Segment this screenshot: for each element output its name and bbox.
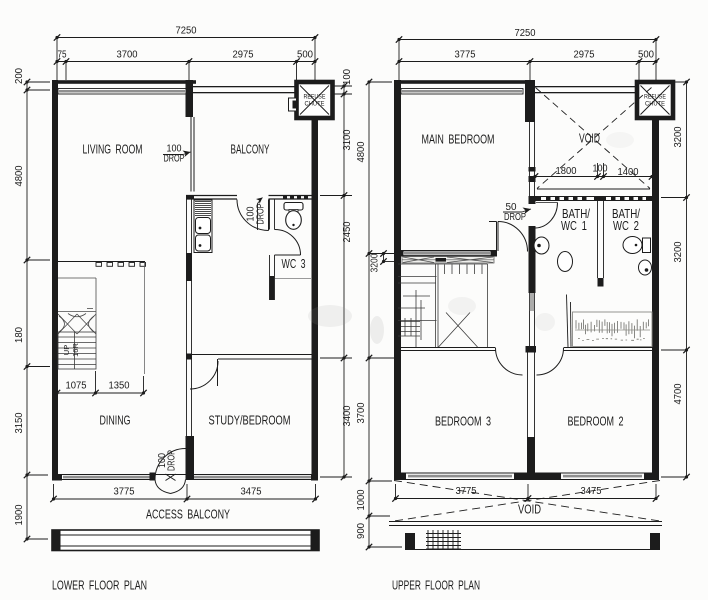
svg-text:LOWER FLOOR PLAN: LOWER FLOOR PLAN — [52, 578, 147, 593]
svg-text:3775: 3775 — [114, 487, 135, 498]
svg-text:UPPER FLOOR PLAN: UPPER FLOOR PLAN — [392, 578, 480, 593]
svg-text:3700: 3700 — [117, 50, 138, 61]
svg-text:200: 200 — [14, 68, 25, 84]
svg-text:BEDROOM 3: BEDROOM 3 — [435, 414, 491, 429]
svg-text:900: 900 — [356, 523, 367, 539]
svg-text:2450: 2450 — [342, 221, 353, 242]
svg-text:180: 180 — [14, 327, 25, 343]
svg-text:WC 3: WC 3 — [282, 256, 306, 271]
svg-text:BALCONY: BALCONY — [231, 142, 270, 157]
svg-text:MAIN BEDROOM: MAIN BEDROOM — [422, 132, 495, 147]
svg-text:3475: 3475 — [581, 486, 602, 497]
svg-text:LIVING ROOM: LIVING ROOM — [83, 142, 143, 157]
svg-text:2975: 2975 — [233, 50, 254, 61]
svg-text:1350: 1350 — [109, 381, 130, 392]
svg-text:VOID: VOID — [579, 131, 600, 146]
svg-text:4800: 4800 — [356, 141, 367, 162]
svg-text:16R: 16R — [71, 343, 80, 357]
svg-text:1000: 1000 — [356, 489, 367, 510]
svg-text:3775: 3775 — [456, 486, 477, 497]
svg-text:WC 2: WC 2 — [613, 218, 639, 233]
svg-text:3775: 3775 — [455, 50, 476, 61]
svg-text:1800: 1800 — [556, 166, 577, 177]
svg-text:4700: 4700 — [673, 383, 684, 404]
svg-text:3400: 3400 — [342, 405, 353, 426]
svg-text:DINING: DINING — [100, 413, 131, 428]
svg-text:1400: 1400 — [618, 167, 639, 178]
svg-text:500: 500 — [297, 50, 313, 61]
svg-text:3475: 3475 — [241, 487, 262, 498]
svg-text:REFUSE: REFUSE — [644, 95, 666, 101]
svg-text:ACCESS BALCONY: ACCESS BALCONY — [146, 507, 230, 522]
svg-text:3200: 3200 — [673, 241, 684, 262]
svg-text:500: 500 — [638, 50, 654, 61]
svg-text:3100: 3100 — [342, 129, 353, 150]
svg-text:BEDROOM 2: BEDROOM 2 — [568, 414, 624, 429]
svg-text:REFUSE: REFUSE — [304, 95, 326, 101]
svg-text:STUDY/BEDROOM: STUDY/BEDROOM — [209, 413, 291, 428]
svg-text:CHUTE: CHUTE — [645, 102, 665, 108]
svg-text:3200: 3200 — [370, 253, 381, 272]
svg-text:3200: 3200 — [673, 126, 684, 147]
svg-text:4800: 4800 — [14, 165, 25, 186]
svg-text:100: 100 — [593, 164, 608, 175]
svg-text:100: 100 — [342, 69, 353, 85]
svg-text:3700: 3700 — [356, 402, 367, 423]
svg-text:7250: 7250 — [515, 28, 536, 39]
svg-text:1900: 1900 — [14, 504, 25, 525]
svg-text:DROP: DROP — [504, 212, 526, 223]
svg-text:2975: 2975 — [574, 50, 595, 61]
svg-text:UP: UP — [62, 345, 71, 355]
svg-text:VOID: VOID — [518, 502, 541, 517]
svg-text:75: 75 — [58, 50, 67, 61]
svg-text:WC 1: WC 1 — [561, 218, 587, 233]
svg-text:DROP: DROP — [167, 450, 178, 471]
svg-text:1075: 1075 — [66, 381, 87, 392]
svg-text:7250: 7250 — [176, 26, 197, 37]
svg-text:DROP: DROP — [164, 154, 185, 165]
svg-text:CHUTE: CHUTE — [305, 102, 325, 108]
svg-text:3150: 3150 — [14, 412, 25, 433]
